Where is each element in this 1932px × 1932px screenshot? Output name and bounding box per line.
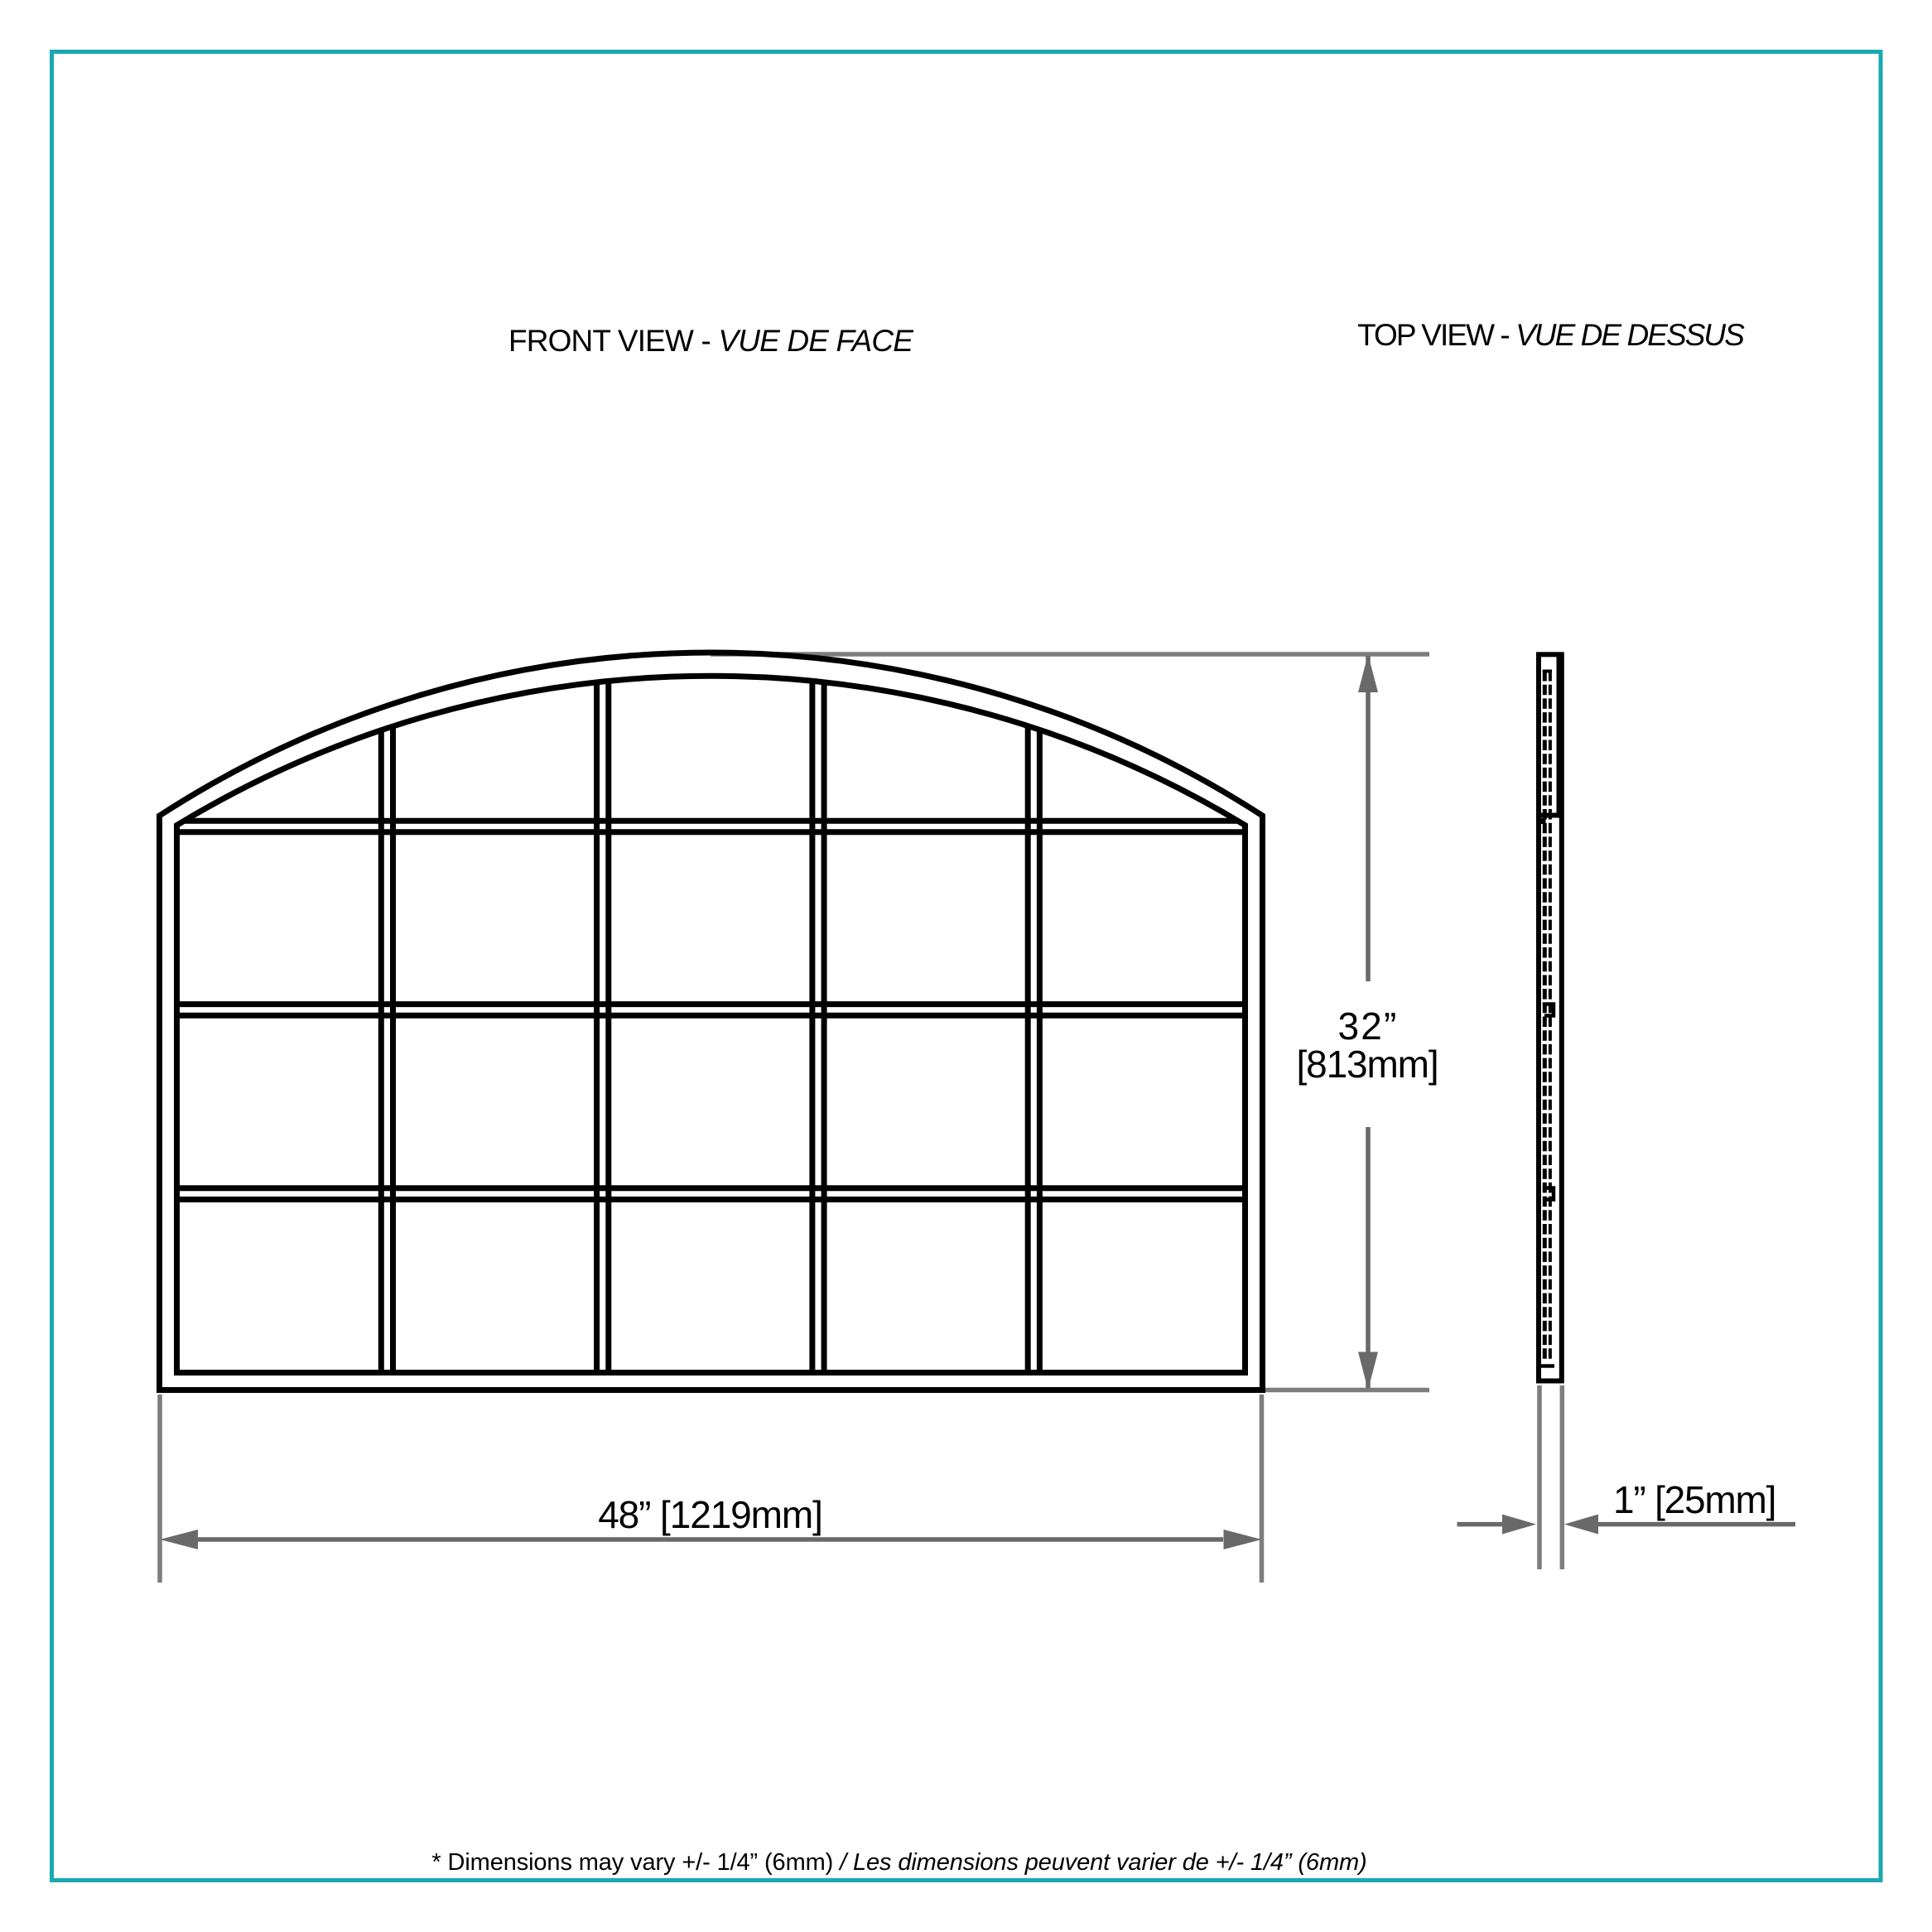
svg-text:1” [25mm]: 1” [25mm] [1613,1478,1775,1521]
svg-text:[813mm]: [813mm] [1297,1043,1438,1086]
svg-text:* Dimensions may vary +/- 1/4”: * Dimensions may vary +/- 1/4” (6mm) / L… [431,1849,1366,1876]
svg-text:48” [1219mm]: 48” [1219mm] [598,1493,822,1536]
svg-text:32”: 32” [1337,1005,1398,1048]
svg-text:TOP VIEW - VUE DE DESSUS: TOP VIEW - VUE DE DESSUS [1357,318,1745,352]
svg-text:FRONT VIEW - VUE DE FACE: FRONT VIEW - VUE DE FACE [508,324,914,358]
